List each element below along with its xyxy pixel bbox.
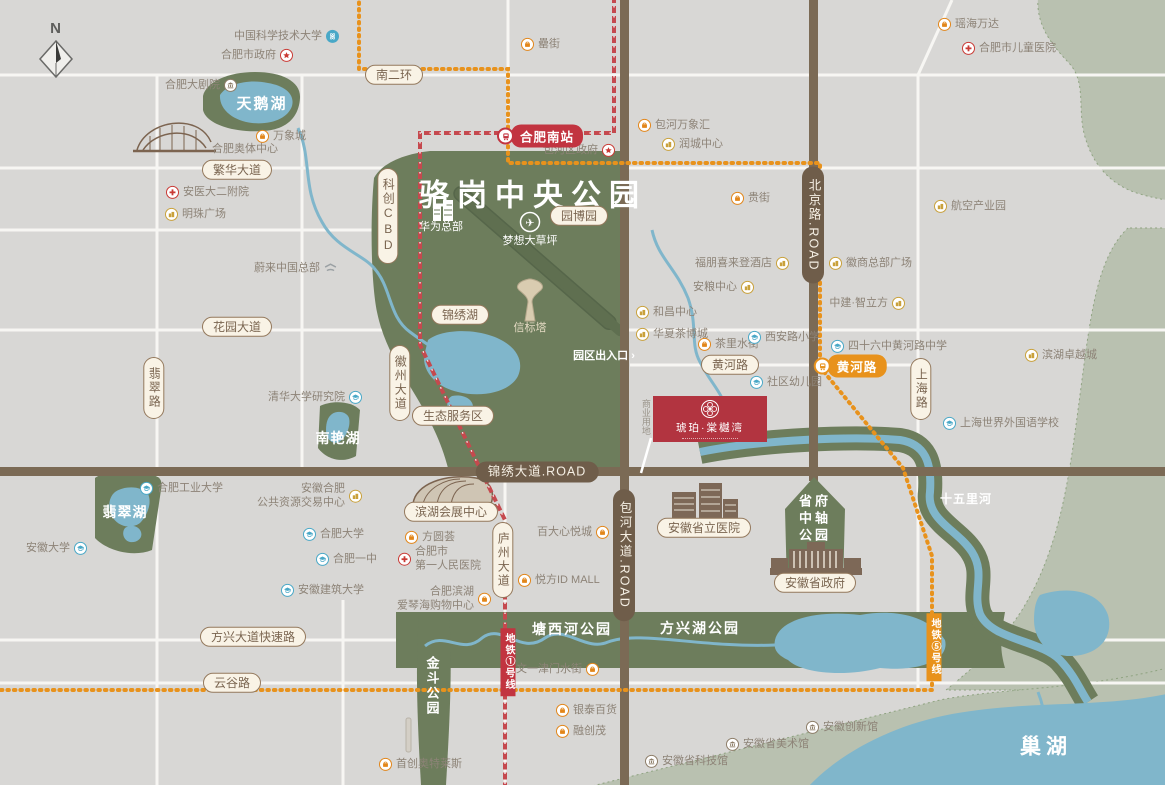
poi-anhui-art-museum: 安徽省美术馆 — [726, 737, 809, 751]
biz-icon — [741, 280, 754, 293]
property-name: 琥珀·棠樾湾 — [676, 420, 744, 435]
poi-aviation-industry-park: 航空产业园 — [934, 199, 1006, 213]
station-name: 合肥南站 — [511, 125, 583, 148]
area-label-feicui-lake: 翡翠湖 — [103, 503, 148, 521]
compass-rose-icon — [34, 37, 78, 81]
poi-label: 福朋喜来登酒店 — [695, 256, 772, 270]
mall-icon — [518, 573, 531, 586]
poi-label: 中国科学技术大学 — [234, 29, 322, 43]
road-label-anhui-provincial-gov: 安徽省政府 — [774, 573, 856, 593]
mall-icon — [698, 337, 711, 350]
poi-label: 安徽创新馆 — [823, 720, 878, 734]
road-label-huayuan-ave: 花园大道 — [202, 317, 272, 337]
hospital-icon — [398, 553, 411, 566]
biz-icon — [165, 207, 178, 220]
mall-icon — [478, 593, 491, 606]
poi-huishang-hq-plaza: 徽商总部广场 — [829, 256, 912, 270]
biz-icon — [636, 327, 649, 340]
school-icon — [750, 375, 763, 388]
poi-label: 悦方ID MALL — [535, 573, 600, 587]
poi-label: 包河万象汇 — [655, 118, 710, 132]
road-label-eco-service-area: 生态服务区 — [412, 406, 494, 426]
biz-icon — [934, 199, 947, 212]
poi-tsinghua-research-institute: 清华大学研究院 — [268, 390, 362, 404]
poi-label: 合肥工业大学 — [157, 481, 223, 495]
poi-hefei-city-gov: 合肥市政府 — [221, 48, 293, 62]
area-label-park-entrance: 园区出入口 › — [573, 349, 635, 363]
metro-line-badge-line1: 地铁①号线 — [501, 628, 516, 696]
poi-label: 蔚来中国总部 — [254, 261, 320, 275]
nio-icon — [324, 261, 337, 274]
road-label-yuanboyuan: 园博园 — [550, 206, 608, 226]
biz-icon — [892, 296, 905, 309]
poi-children-hospital: 合肥市儿童医院 — [962, 41, 1056, 55]
poi-label: 航空产业园 — [951, 199, 1006, 213]
poi-baohe-mixc: 包河万象汇 — [638, 118, 710, 132]
area-label-dream-lawn: 梦想大草坪 — [503, 234, 558, 248]
poi-label: 安粮中心 — [693, 280, 737, 294]
hospital-icon — [962, 41, 975, 54]
poi-label: 融创茂 — [573, 724, 606, 738]
area-label-fangxinghu-park: 方兴湖公园 — [660, 619, 740, 637]
poi-no46-huanghe-middle: 四十六中黄河路中学 — [831, 339, 947, 353]
poi-label: 百大心悦城 — [537, 525, 592, 539]
poi-label: 银泰百货 — [573, 703, 617, 717]
gov-icon — [280, 48, 293, 61]
school-icon — [74, 541, 87, 554]
museum-icon — [645, 754, 658, 767]
location-map: ✈ N 琥珀·棠樾湾 中国科学技术大学合肥市政府合肥大剧院万象城安医 — [0, 0, 1165, 785]
poi-sheraton-four-points: 福朋喜来登酒店 — [695, 256, 789, 270]
poi-hefei-no1-middle: 合肥一中 — [316, 552, 377, 566]
area-label-beacon-tower: 信标塔 — [514, 321, 547, 335]
poi-label: 清华大学研究院 — [268, 390, 345, 404]
poi-community-kindergarten: 社区幼儿园 — [750, 375, 822, 389]
road-label-luzhou-ave: 庐州大道 — [492, 522, 513, 598]
school-icon — [831, 339, 844, 352]
mall-icon — [586, 662, 599, 675]
observation-pillar — [406, 718, 411, 752]
poi-label: 安徽省美术馆 — [743, 737, 809, 751]
poi-label: 徽商总部广场 — [846, 256, 912, 270]
property-marker: 琥珀·棠樾湾 — [653, 396, 767, 442]
area-label-luogang-park-title: 骆岗中央公园 — [419, 177, 647, 216]
area-label-tangxihe-park: 塘西河公园 — [532, 620, 612, 638]
road-label-shanghai-road: 上海路 — [910, 358, 931, 420]
poi-label: 合肥大剧院 — [165, 78, 220, 92]
train-icon — [497, 128, 514, 145]
poi-id-mall: 悦方ID MALL — [518, 573, 600, 587]
poi-capital-outlets: 首创奥特莱斯 — [379, 757, 462, 771]
poi-hefei-univ-tech: 合肥工业大学 — [140, 481, 223, 495]
poi-ustc: 中国科学技术大学 — [234, 29, 339, 43]
poi-label: 罍街 — [538, 37, 560, 51]
road-label-huanghe-road-pill: 黄河路 — [701, 355, 759, 375]
ustc-icon — [326, 29, 339, 42]
poi-mixc: 万象城 — [256, 129, 306, 143]
poi-fangyuanhui: 方圆荟 — [405, 530, 455, 544]
poi-wenyi-jinmen-water-street: 文一津门水街 — [516, 662, 599, 676]
school-icon — [349, 390, 362, 403]
poi-zhongjian-zhilifang: 中建·智立方 — [829, 296, 905, 310]
poi-hechang-center: 和昌中心 — [636, 305, 697, 319]
mall-icon — [638, 118, 651, 131]
mall-icon — [405, 530, 418, 543]
poi-public-resource-center: 安徽合肥公共资源交易中心 — [257, 482, 362, 511]
area-label-jindou-park: 金斗公园 — [423, 656, 440, 716]
biz-icon — [349, 490, 362, 503]
area-label-commercial-plot: 商业用地 — [639, 399, 651, 435]
poi-label: 中建·智立方 — [829, 296, 888, 310]
metro-line-badge-line5: 地铁⑤号线 — [927, 613, 942, 681]
poi-pearl-plaza: 明珠广场 — [165, 207, 226, 221]
mall-icon — [731, 191, 744, 204]
poi-lei-street: 罍街 — [521, 37, 560, 51]
fangxing-lake-shape — [775, 613, 946, 673]
road-label-huizhou-ave: 徽州大道 — [389, 345, 410, 421]
road-label-baohe-ave: 包河大道.ROAD — [613, 489, 635, 621]
poi-label: 合肥市儿童医院 — [979, 41, 1056, 55]
poi-label: 上海世界外国语学校 — [960, 416, 1059, 430]
area-label-huawei-hq: 华为总部 — [419, 220, 463, 234]
biz-icon — [662, 137, 675, 150]
area-label-shiwuli-river: 十五里河 — [940, 492, 992, 508]
poi-anyi-2nd-hospital: 安医大二附院 — [166, 185, 249, 199]
school-icon — [943, 416, 956, 429]
museum-icon — [726, 737, 739, 750]
metro-station-hefei-south: 合肥南站 — [497, 125, 583, 148]
hospital-icon — [166, 185, 179, 198]
poi-label: 西安路小学 — [765, 330, 820, 344]
poi-sunac-mall: 融创茂 — [556, 724, 606, 738]
poi-gui-street: 贵街 — [731, 191, 770, 205]
poi-anliang-center: 安粮中心 — [693, 280, 754, 294]
area-label-swan-lake: 天鹅湖 — [236, 94, 287, 114]
poi-nio-china-hq: 蔚来中国总部 — [254, 261, 337, 275]
poi-label: 合肥大学 — [320, 527, 364, 541]
poi-yaohai-wanda: 瑶海万达 — [938, 17, 999, 31]
poi-label: 首创奥特莱斯 — [396, 757, 462, 771]
poi-anhui-university: 安徽大学 — [26, 541, 87, 555]
poi-hefei-university: 合肥大学 — [303, 527, 364, 541]
area-label-chao-lake: 巢湖 — [1020, 733, 1072, 760]
road-label-binhu-expo-center: 滨湖会展中心 — [404, 502, 498, 522]
area-label-shengfu-axis-park: 省府中轴公园 — [799, 494, 831, 545]
biz-icon — [829, 256, 842, 269]
poi-runcheng-center: 润城中心 — [662, 137, 723, 151]
poi-hefei-grand-theater: 合肥大剧院 — [165, 78, 237, 92]
poi-label: 滨湖卓越城 — [1042, 348, 1097, 362]
poi-label: 方圆荟 — [422, 530, 455, 544]
poi-binhu-zhuoyue-town: 滨湖卓越城 — [1025, 348, 1097, 362]
poi-label: 安徽省科技馆 — [662, 754, 728, 768]
mall-icon — [256, 129, 269, 142]
poi-label: 明珠广场 — [182, 207, 226, 221]
area-label-olympic-center: 合肥奥体中心 — [212, 142, 278, 156]
road-label-kechuang-cbd: 科创CBD — [377, 168, 398, 264]
poi-label: 和昌中心 — [653, 305, 697, 319]
poi-anhui-innovation-museum: 安徽创新馆 — [806, 720, 878, 734]
compass-n-label: N — [34, 20, 78, 37]
road-label-beijing-road: 北京路.ROAD — [802, 166, 824, 283]
road-label-yungu-road: 云谷路 — [203, 673, 261, 693]
property-logo-icon — [700, 399, 720, 419]
property-tagline-rule — [682, 438, 738, 439]
mall-icon — [379, 757, 392, 770]
road-label-fanhua-ave: 繁华大道 — [202, 160, 272, 180]
poi-anhui-jianzhu-univ: 安徽建筑大学 — [281, 583, 364, 597]
school-icon — [316, 552, 329, 565]
poi-label: 安徽大学 — [26, 541, 70, 555]
station-name: 黄河路 — [828, 355, 887, 378]
train-icon — [814, 358, 831, 375]
poi-label: 四十六中黄河路中学 — [848, 339, 947, 353]
school-icon — [140, 481, 153, 494]
poi-label: 贵街 — [748, 191, 770, 205]
mall-icon — [596, 525, 609, 538]
poi-label: 安医大二附院 — [183, 185, 249, 199]
poi-label: 合肥市政府 — [221, 48, 276, 62]
compass: N — [34, 20, 78, 86]
poi-label: 安徽建筑大学 — [298, 583, 364, 597]
metro-station-huanghe-road: 黄河路 — [814, 355, 887, 378]
poi-first-people-hospital: 合肥市第一人民医院 — [398, 545, 481, 574]
museum-icon — [806, 720, 819, 733]
poi-label: 润城中心 — [679, 137, 723, 151]
mall-icon — [521, 37, 534, 50]
road-label-jinxiu-lake: 锦绣湖 — [431, 305, 489, 325]
school-icon — [281, 583, 294, 596]
road-label-feicui-road: 翡翠路 — [143, 357, 164, 419]
biz-icon — [1025, 348, 1038, 361]
poi-label: 万象城 — [273, 129, 306, 143]
area-label-nanyan-lake: 南艳湖 — [316, 429, 361, 447]
poi-shanghai-world-foreign-school: 上海世界外国语学校 — [943, 416, 1059, 430]
poi-label: 瑶海万达 — [955, 17, 999, 31]
road-label-fangxing-expressway: 方兴大道快速路 — [200, 627, 306, 647]
mall-icon — [556, 724, 569, 737]
road-label-anhui-provincial-hospital: 安徽省立医院 — [657, 518, 751, 538]
poi-label: 安徽合肥公共资源交易中心 — [257, 482, 345, 511]
road-label-south-2nd-ring: 南二环 — [365, 65, 423, 85]
mall-icon — [938, 17, 951, 30]
mall-icon — [556, 703, 569, 716]
poi-aegean-mall: 合肥滨湖爱琴海购物中心 — [397, 585, 491, 614]
poi-xian-road-primary: 西安路小学 — [748, 330, 820, 344]
poi-label: 合肥市第一人民医院 — [415, 545, 481, 574]
theater-icon — [224, 78, 237, 91]
poi-label: 文一津门水街 — [516, 662, 582, 676]
poi-label: 合肥一中 — [333, 552, 377, 566]
school-icon — [748, 330, 761, 343]
poi-baida-xinyue-city: 百大心悦城 — [537, 525, 609, 539]
road-label-jinxiu-ave: 锦绣大道.ROAD — [476, 462, 599, 483]
svg-text:✈: ✈ — [525, 217, 534, 230]
poi-anhui-science-museum: 安徽省科技馆 — [645, 754, 728, 768]
biz-icon — [636, 305, 649, 318]
poi-label: 合肥滨湖爱琴海购物中心 — [397, 585, 474, 614]
biz-icon — [776, 256, 789, 269]
school-icon — [303, 527, 316, 540]
gov-icon — [602, 143, 615, 156]
poi-yintai-dept-store: 银泰百货 — [556, 703, 617, 717]
